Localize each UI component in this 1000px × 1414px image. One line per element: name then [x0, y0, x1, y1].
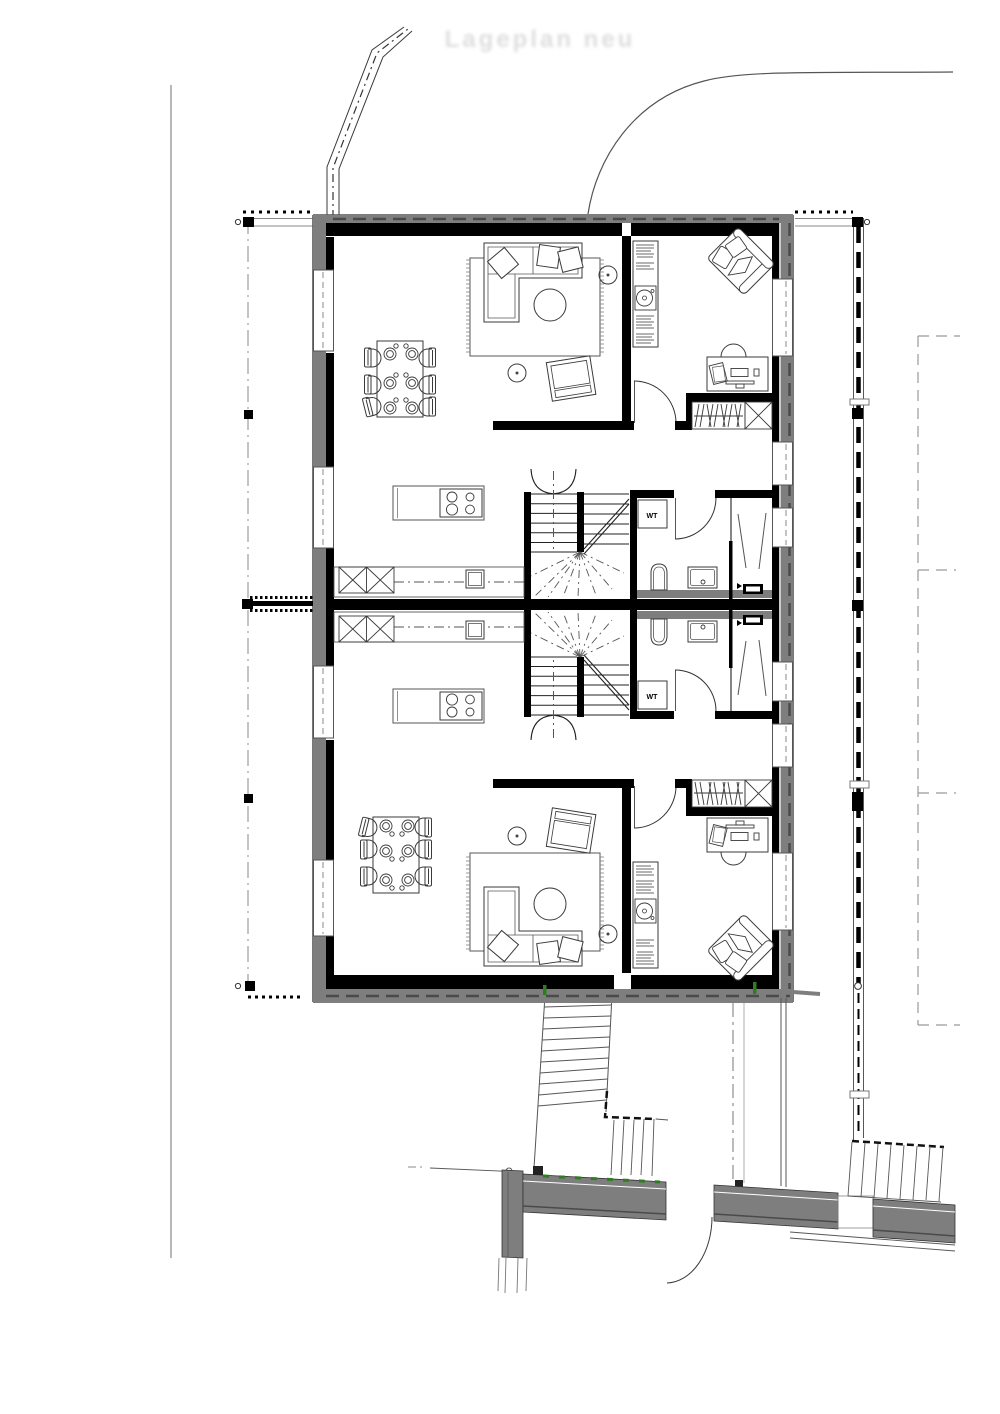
- svg-text:WT: WT: [647, 513, 659, 520]
- svg-text:Lageplan neu: Lageplan neu: [445, 26, 636, 53]
- svg-text:WT: WT: [647, 694, 659, 701]
